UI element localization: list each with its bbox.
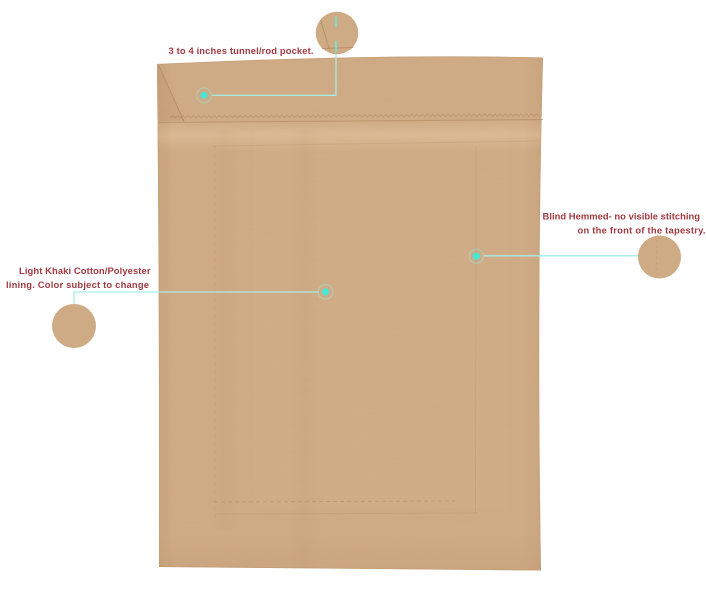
svg-text:on the front of the tapestry.: on the front of the tapestry. [578, 225, 706, 236]
svg-text:Light Khaki Cotton/Polyester: Light Khaki Cotton/Polyester [19, 265, 151, 276]
svg-text:Blind Hemmed- no visible stitc: Blind Hemmed- no visible stitching [543, 211, 701, 222]
svg-text:3 to 4 inches tunnel/rod pocke: 3 to 4 inches tunnel/rod pocket. [169, 45, 314, 56]
svg-text:lining. Color subject to chang: lining. Color subject to change [6, 279, 149, 290]
